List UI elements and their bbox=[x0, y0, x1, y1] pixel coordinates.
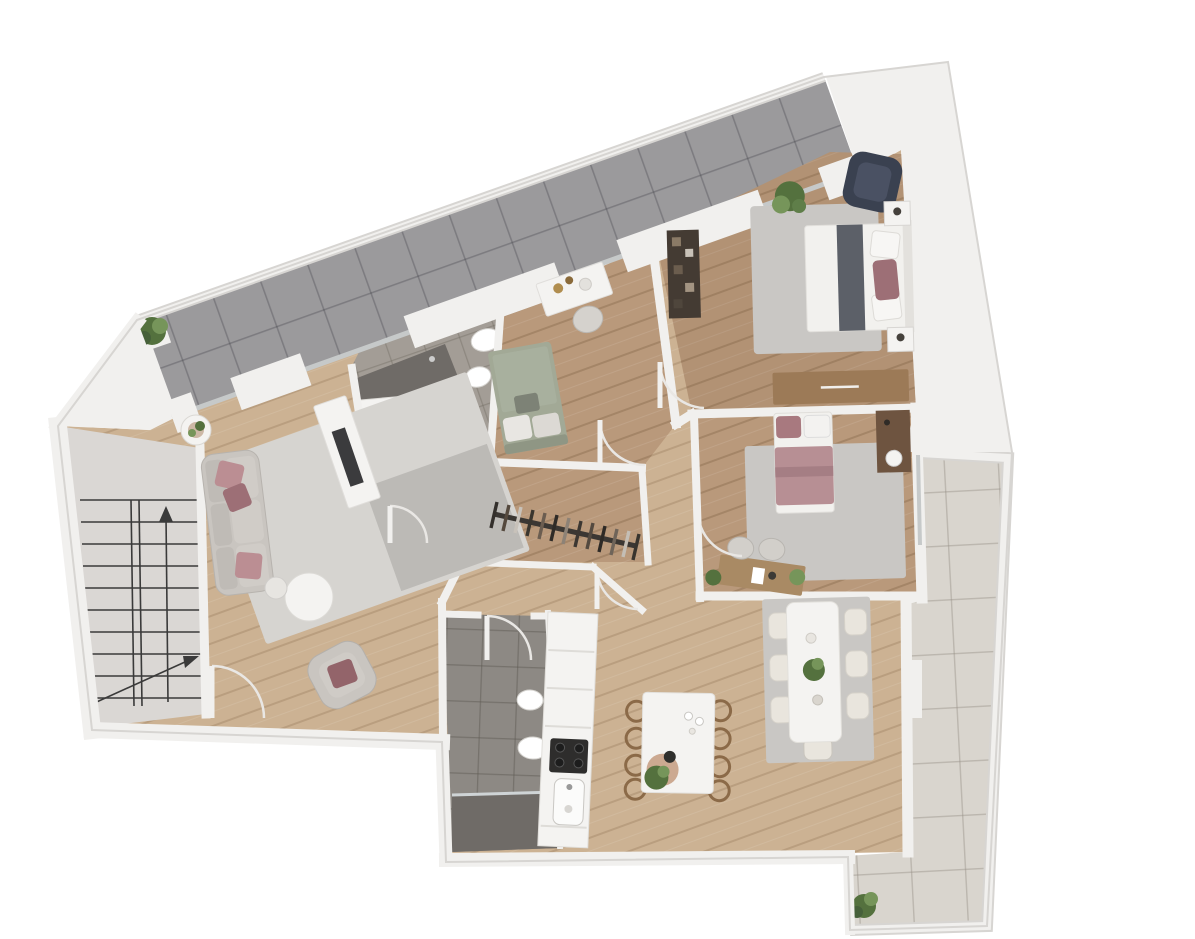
shelf-item bbox=[685, 283, 694, 292]
glass bbox=[689, 728, 695, 734]
nightstand-tall bbox=[876, 410, 912, 473]
dresser bbox=[772, 369, 909, 405]
shelf-item bbox=[672, 237, 681, 246]
burner bbox=[555, 743, 564, 752]
floor-plan-canvas bbox=[0, 0, 1195, 939]
wall-living-bath2 bbox=[442, 602, 443, 741]
balcony-door bbox=[902, 660, 922, 718]
table-decor bbox=[813, 695, 823, 705]
kitchen-counter-run bbox=[538, 612, 598, 848]
desk-paper bbox=[751, 567, 765, 585]
dining-chair bbox=[845, 651, 868, 678]
dining-chair bbox=[846, 693, 869, 720]
nightstand-bottom bbox=[887, 327, 914, 352]
shower-drain bbox=[429, 356, 435, 362]
floor-plan bbox=[0, 0, 1195, 939]
glass bbox=[695, 717, 703, 725]
plant-foliage-highlight bbox=[864, 892, 878, 906]
shelf-item bbox=[673, 299, 682, 308]
plant-foliage-highlight bbox=[152, 318, 168, 334]
bed-pillow-mauve bbox=[776, 416, 802, 439]
bed-master bbox=[805, 220, 915, 335]
shelf-item bbox=[685, 249, 693, 257]
side-table-small bbox=[265, 577, 287, 599]
area-dining bbox=[762, 597, 874, 764]
cooktop bbox=[549, 738, 588, 774]
dresser-handle bbox=[821, 386, 859, 387]
dining-chair bbox=[844, 609, 867, 636]
bed-throw-runner bbox=[837, 224, 866, 331]
burner bbox=[574, 744, 583, 753]
table-lamp bbox=[886, 450, 902, 466]
burner bbox=[555, 758, 564, 767]
nightstand-top bbox=[884, 201, 911, 226]
open-shelf bbox=[667, 230, 701, 319]
wall-bath2-top bbox=[443, 614, 478, 615]
plant-foliage-highlight bbox=[188, 429, 196, 437]
bed-pillow bbox=[804, 415, 831, 438]
shelf-body bbox=[667, 230, 701, 319]
shelf-item bbox=[674, 265, 683, 274]
table-decor bbox=[806, 633, 816, 643]
plant-side-table bbox=[181, 415, 211, 445]
bed-pillow bbox=[870, 230, 901, 259]
outer-wall bbox=[906, 600, 908, 852]
bed-pillow-accent bbox=[872, 259, 900, 301]
bed-single bbox=[774, 412, 835, 513]
bed-pillow bbox=[502, 414, 533, 442]
plant-foliage bbox=[195, 421, 205, 431]
throw-pillow bbox=[235, 552, 263, 580]
window-bedroom2-balcony bbox=[918, 455, 920, 545]
coffee-table bbox=[285, 573, 333, 621]
glass bbox=[684, 712, 692, 720]
bed-duvet-fold bbox=[775, 466, 833, 478]
bed-pillow bbox=[531, 412, 561, 438]
burner bbox=[574, 759, 583, 768]
